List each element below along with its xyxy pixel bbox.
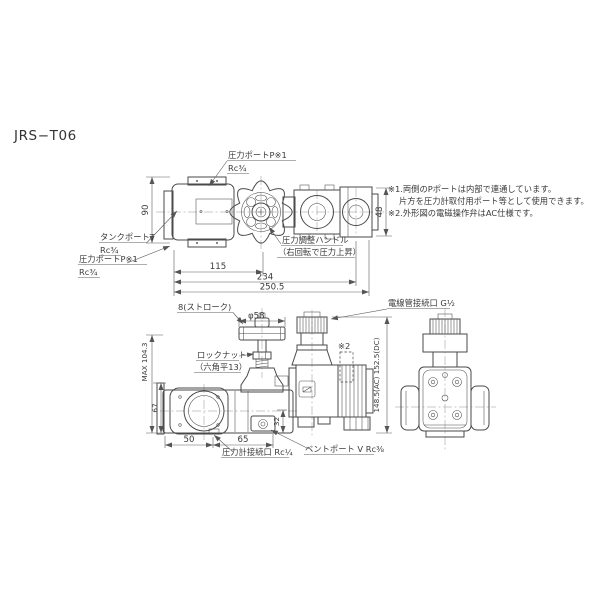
- side-port-boss-right: [471, 386, 489, 430]
- svg-text:8(ストローク): 8(ストローク): [178, 302, 231, 312]
- side-port-boss-left: [401, 386, 419, 430]
- side-view: [395, 308, 496, 450]
- dim-50-65: 50 65: [165, 434, 273, 448]
- svg-text:圧力ポートP※1: 圧力ポートP※1: [228, 150, 287, 160]
- note-1-line-2: 片方を圧力計取付用ポート等として使用できます。: [399, 196, 589, 206]
- solenoid-nameplate: [299, 381, 315, 397]
- label-stroke: 8(ストローク): [177, 302, 243, 324]
- svg-text:（右回転で圧力上昇）: （右回転で圧力上昇）: [278, 247, 361, 257]
- label-pressure-port-bottom: 圧力ポートP※1 Rc¾: [78, 246, 170, 278]
- svg-text:ベントポート V Rc⅜: ベントポート V Rc⅜: [305, 444, 384, 454]
- bonnet-front: [241, 368, 288, 392]
- dim-32-value: 32: [272, 417, 281, 426]
- dim-115-value: 115: [210, 262, 226, 272]
- dim-max-value: MAX 104.3: [140, 343, 149, 382]
- front-view: φ58 8(ストローク) ロックナット （六角平13） ※2 MAX 104.3: [140, 298, 455, 458]
- valve-outline-drawing: JRS−T06: [0, 0, 600, 600]
- dim-90-value: 90: [141, 205, 151, 216]
- drawing-title: JRS−T06: [13, 128, 77, 144]
- notes: ※1.両側のPポートは内部で連通しています。 片方を圧力計取付用ポート等として使…: [388, 184, 589, 218]
- svg-text:Rc¾: Rc¾: [79, 267, 97, 277]
- dim-67-value: 67: [151, 403, 160, 412]
- dim-50-value: 50: [184, 435, 195, 445]
- nameplate-top: [196, 199, 232, 224]
- label-adjust-handle: 圧力調整ハンドル （右回転で圧力上昇）: [269, 227, 361, 258]
- label-tank-port: タンクポートT Rc¾: [99, 211, 177, 256]
- svg-text:（六角平13）: （六角平13）: [195, 362, 247, 372]
- note-1-line-1: ※1.両側のPポートは内部で連通しています。: [388, 184, 556, 194]
- dim-32: 32: [272, 410, 287, 433]
- note-2: ※2.外形図の電磁操作弁はAC仕様です。: [388, 208, 538, 218]
- svg-text:タンクポートT: タンクポートT: [100, 232, 156, 242]
- dim-48-value: 48: [375, 207, 385, 218]
- label-ref2: ※2: [338, 341, 350, 351]
- label-gauge-port: 圧力計接続口 Rc¼: [214, 435, 293, 458]
- drawing-sheet: JRS−T06: [0, 0, 600, 600]
- dim-250-5-value: 250.5: [260, 283, 285, 293]
- dim-total-height-value: 148.5(AC) 152.5(DC): [372, 337, 381, 412]
- label-lock-nut: ロックナット （六角平13）: [194, 350, 254, 373]
- dim-phi58-value: φ58: [248, 312, 265, 322]
- svg-text:ロックナット: ロックナット: [197, 350, 247, 360]
- svg-text:電線管接続口 G½: 電線管接続口 G½: [388, 298, 455, 308]
- top-view: 90 48 115 234 250.5 圧力ポートP※1 Rc¾: [78, 150, 392, 296]
- dim-234-value: 234: [257, 273, 273, 283]
- svg-text:Rc¾: Rc¾: [228, 163, 246, 173]
- label-pressure-port-top: 圧力ポートP※1 Rc¾: [209, 150, 296, 186]
- solenoid-front: [289, 312, 373, 430]
- label-conduit-port: 電線管接続口 G½: [331, 298, 455, 319]
- svg-text:圧力調整ハンドル: 圧力調整ハンドル: [282, 235, 348, 245]
- dim-65-value: 65: [238, 435, 249, 445]
